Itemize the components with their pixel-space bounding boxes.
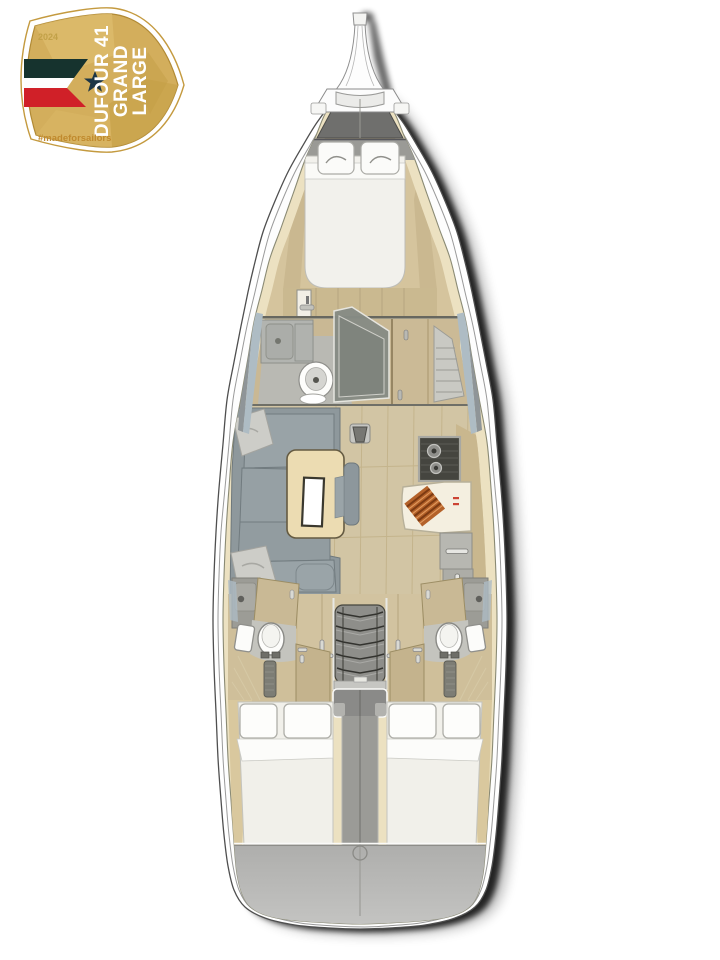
svg-text:GRAND: GRAND (111, 45, 132, 117)
svg-text:2024: 2024 (38, 32, 58, 42)
svg-text:#madeforsailors: #madeforsailors (38, 133, 111, 144)
svg-text:DUFOUR 41: DUFOUR 41 (92, 25, 113, 137)
svg-text:LARGE: LARGE (130, 47, 151, 116)
